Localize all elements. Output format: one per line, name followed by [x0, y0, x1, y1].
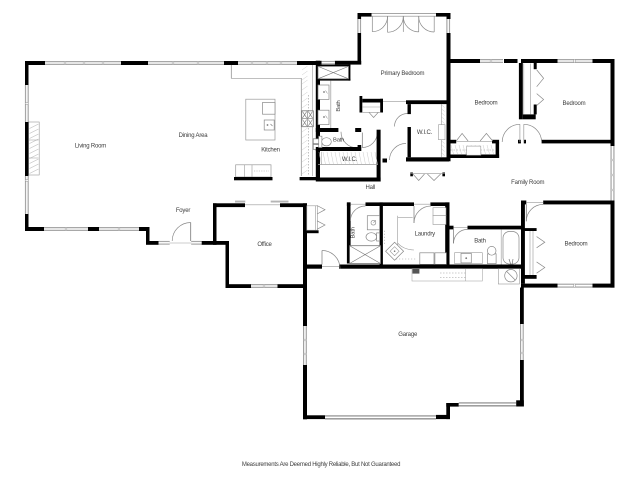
svg-text:Bath: Bath — [333, 137, 344, 143]
svg-text:Living Room: Living Room — [75, 144, 106, 150]
svg-text:Hall: Hall — [366, 185, 376, 191]
svg-text:Garage: Garage — [398, 332, 418, 338]
svg-text:Bedroom: Bedroom — [563, 101, 586, 107]
svg-text:Bath: Bath — [474, 238, 486, 244]
svg-text:Bedroom: Bedroom — [475, 101, 498, 107]
svg-text:Office: Office — [257, 242, 272, 248]
svg-text:W.I.C.: W.I.C. — [342, 157, 358, 163]
svg-text:Bedroom: Bedroom — [565, 241, 588, 247]
svg-text:Measurements Are Deemed Highly: Measurements Are Deemed Highly Reliable,… — [242, 462, 400, 468]
svg-text:Foyer: Foyer — [176, 208, 191, 214]
svg-text:Bath: Bath — [336, 100, 342, 111]
svg-text:Family Room: Family Room — [511, 180, 544, 186]
svg-text:Bath: Bath — [351, 227, 357, 238]
svg-text:Kitchen: Kitchen — [261, 147, 280, 153]
svg-text:Laundry: Laundry — [415, 231, 435, 237]
svg-text:Primary Bedroom: Primary Bedroom — [381, 71, 425, 77]
svg-text:W.I.C.: W.I.C. — [417, 130, 433, 136]
svg-text:Dining Area: Dining Area — [179, 133, 209, 139]
